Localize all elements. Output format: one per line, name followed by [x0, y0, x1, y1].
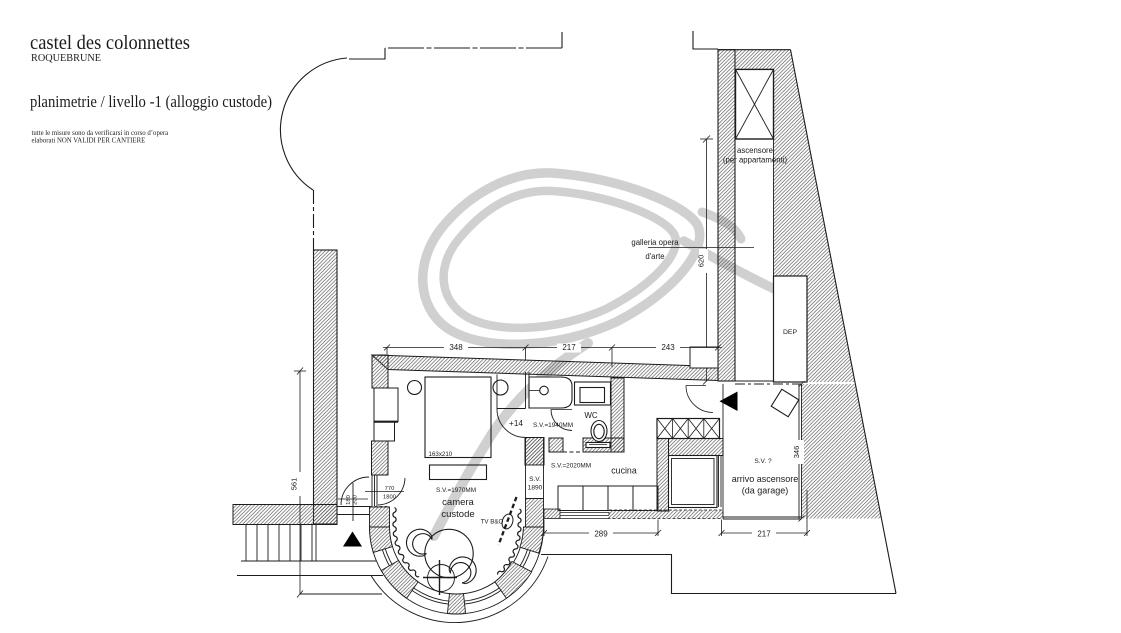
svg-text:163x210: 163x210	[429, 451, 453, 458]
svg-text:S.V.=2020MM: S.V.=2020MM	[551, 463, 591, 470]
svg-text:180: 180	[346, 495, 352, 505]
svg-text:elaborati NON VALIDI PER CANTI: elaborati NON VALIDI PER CANTIERE	[32, 138, 146, 145]
svg-text:(per appartamenti): (per appartamenti)	[723, 156, 788, 165]
svg-text:S.V. ?: S.V. ?	[754, 458, 772, 465]
svg-text:1800: 1800	[383, 495, 396, 501]
svg-text:289: 289	[594, 530, 608, 539]
svg-text:S.V.=1940MM: S.V.=1940MM	[533, 422, 573, 429]
svg-text:561: 561	[290, 478, 299, 491]
svg-text:1890: 1890	[528, 485, 543, 492]
svg-text:d'arte: d'arte	[645, 252, 664, 261]
svg-text:ascensore: ascensore	[737, 146, 773, 155]
svg-text:WC: WC	[584, 411, 598, 420]
svg-text:217: 217	[757, 530, 771, 539]
svg-text:camera: camera	[442, 497, 474, 508]
svg-text:348: 348	[449, 343, 463, 352]
svg-text:galleria opera: galleria opera	[631, 238, 679, 247]
svg-text:346: 346	[792, 446, 801, 459]
svg-text:S.V.=1970MM: S.V.=1970MM	[436, 487, 476, 494]
svg-text:tutte le misure sono da verifi: tutte le misure sono da verificarsi in c…	[32, 130, 169, 137]
svg-text:custode: custode	[441, 509, 474, 520]
svg-text:+14: +14	[509, 419, 523, 428]
svg-text:arrivo ascensore: arrivo ascensore	[732, 474, 799, 484]
svg-text:200: 200	[353, 495, 359, 505]
svg-text:cucina: cucina	[611, 466, 637, 476]
svg-text:217: 217	[562, 343, 576, 352]
svg-text:(da garage): (da garage)	[742, 486, 789, 496]
svg-text:770: 770	[385, 486, 395, 492]
svg-text:planimetrie / livello -1 (allo: planimetrie / livello -1 (alloggio custo…	[30, 92, 272, 111]
svg-text:TV B&O: TV B&O	[481, 519, 504, 526]
svg-text:castel des colonnettes: castel des colonnettes	[30, 33, 190, 54]
svg-text:620: 620	[697, 255, 706, 268]
svg-text:DEP: DEP	[783, 329, 797, 336]
svg-text:ROQUEBRUNE: ROQUEBRUNE	[31, 53, 101, 64]
svg-text:243: 243	[661, 343, 675, 352]
svg-text:S.V.: S.V.	[529, 476, 541, 483]
